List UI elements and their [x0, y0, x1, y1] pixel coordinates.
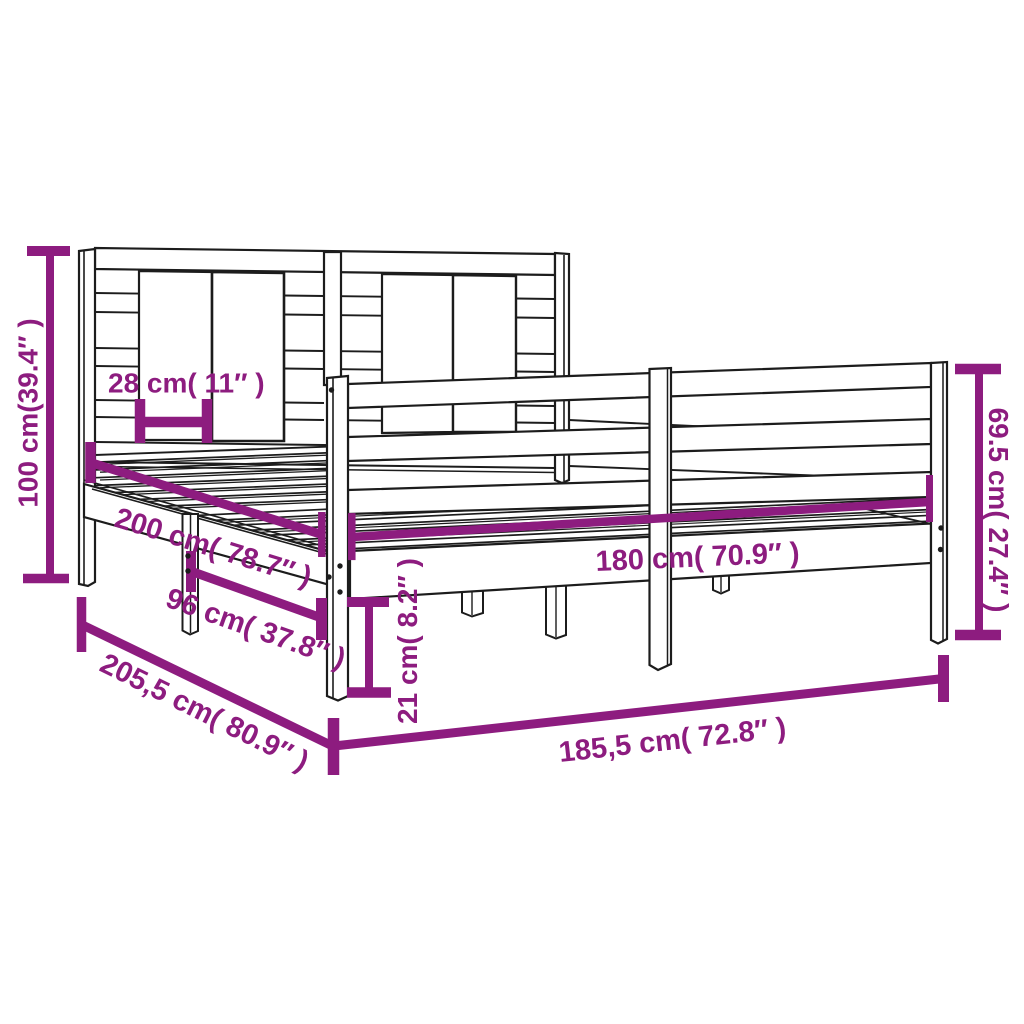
svg-text:21 cm( 8.2″ ): 21 cm( 8.2″ )	[392, 558, 423, 724]
svg-text:28 cm( 11″ ): 28 cm( 11″ )	[108, 368, 265, 399]
svg-text:69.5 cm( 27.4″ ): 69.5 cm( 27.4″ )	[983, 408, 1014, 613]
svg-text:100 cm(39.4″ ): 100 cm(39.4″ )	[13, 318, 44, 507]
